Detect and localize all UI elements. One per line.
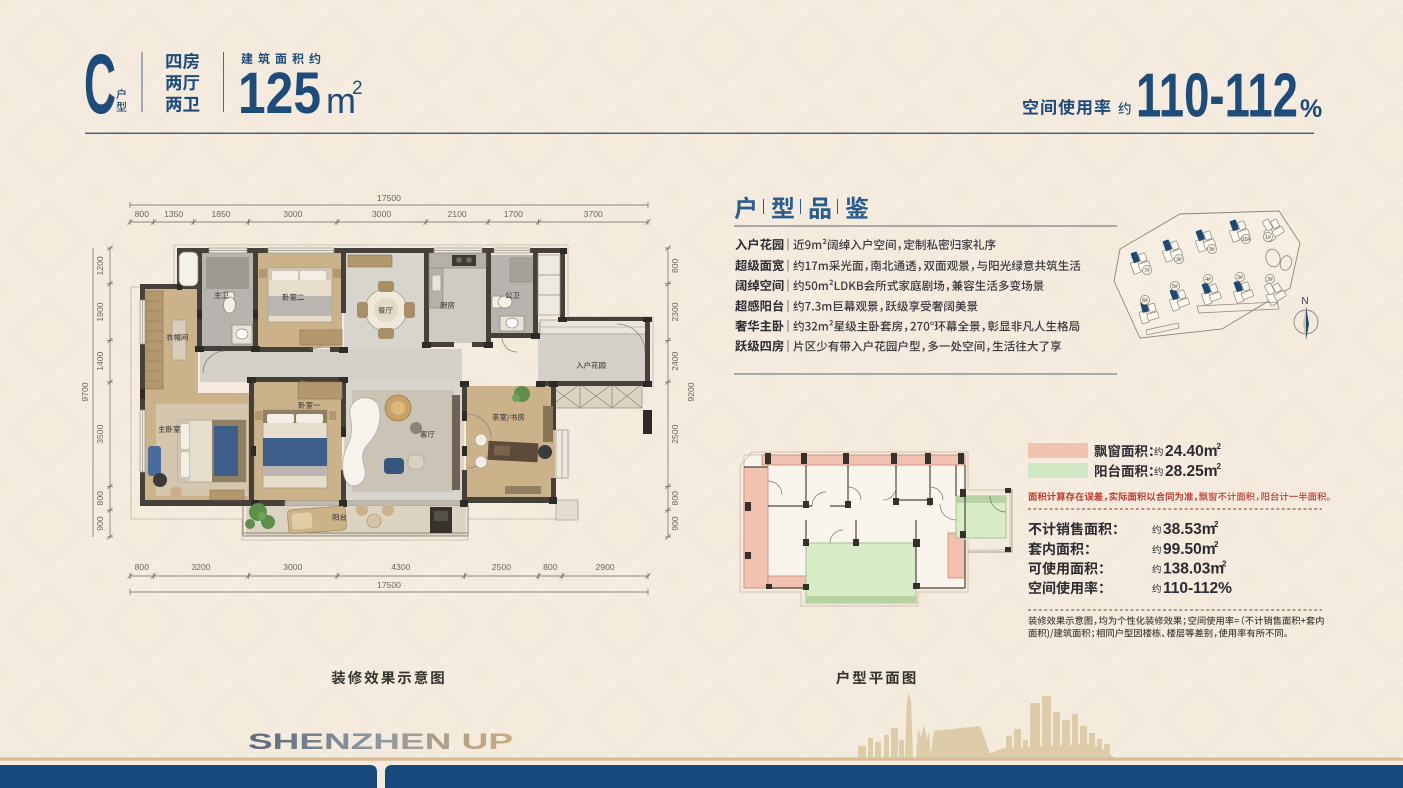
svg-text:3700: 3700 xyxy=(584,209,603,219)
svg-text:6#: 6# xyxy=(1142,298,1148,304)
svg-text:3000: 3000 xyxy=(372,209,391,219)
svg-text:2300: 2300 xyxy=(670,302,680,321)
svg-text:5#: 5# xyxy=(1172,284,1178,290)
svg-text:2500: 2500 xyxy=(670,424,680,443)
svg-text:2: 2 xyxy=(352,78,363,99)
svg-text:38.53m: 38.53m xyxy=(1163,521,1216,538)
svg-text:1#: 1# xyxy=(1265,235,1271,241)
svg-text:800: 800 xyxy=(670,258,680,273)
svg-text:800: 800 xyxy=(135,209,150,219)
svg-text:9200: 9200 xyxy=(686,382,696,401)
svg-text:1400: 1400 xyxy=(95,351,105,370)
svg-text:1900: 1900 xyxy=(95,302,105,321)
svg-text:2900: 2900 xyxy=(596,562,615,572)
svg-text:800: 800 xyxy=(135,562,150,572)
svg-text:99.50m: 99.50m xyxy=(1163,541,1216,558)
svg-text:24.40m: 24.40m xyxy=(1165,443,1218,460)
svg-text:2100: 2100 xyxy=(448,209,467,219)
svg-text:800: 800 xyxy=(543,562,558,572)
svg-text:3200: 3200 xyxy=(191,562,210,572)
svg-text:900: 900 xyxy=(95,516,105,531)
svg-text:2: 2 xyxy=(1214,540,1219,549)
svg-text:138.03m: 138.03m xyxy=(1163,561,1224,578)
svg-text:2#: 2# xyxy=(1267,277,1273,283)
svg-text:800: 800 xyxy=(670,491,680,506)
svg-text:17500: 17500 xyxy=(377,580,401,590)
svg-text:SHENZHEN UP: SHENZHEN UP xyxy=(248,729,513,754)
svg-text:900: 900 xyxy=(670,516,680,531)
svg-text:7#: 7# xyxy=(1144,268,1150,274)
svg-text:9#: 9# xyxy=(1209,247,1215,253)
svg-text:%: % xyxy=(1300,95,1322,123)
svg-text:2500: 2500 xyxy=(492,562,511,572)
svg-text:2: 2 xyxy=(1217,442,1222,451)
svg-text:4300: 4300 xyxy=(391,562,410,572)
svg-text:10#: 10# xyxy=(1242,237,1251,243)
svg-text:3#: 3# xyxy=(1176,257,1182,263)
svg-text:1700: 1700 xyxy=(504,209,523,219)
svg-text:9700: 9700 xyxy=(80,382,90,401)
svg-text:2: 2 xyxy=(1217,462,1222,471)
svg-text:800: 800 xyxy=(95,491,105,506)
svg-text:2: 2 xyxy=(1222,560,1227,569)
svg-text:110-112: 110-112 xyxy=(1136,62,1298,131)
svg-text:1850: 1850 xyxy=(211,209,230,219)
svg-text:1200: 1200 xyxy=(95,256,105,275)
svg-text:3000: 3000 xyxy=(283,562,302,572)
svg-text:110-112%: 110-112% xyxy=(1163,580,1232,597)
svg-text:2400: 2400 xyxy=(670,351,680,370)
svg-text:28.25m: 28.25m xyxy=(1165,463,1218,480)
svg-text:3#: 3# xyxy=(1237,275,1243,281)
svg-text:2: 2 xyxy=(1214,520,1219,529)
svg-text:3500: 3500 xyxy=(95,424,105,443)
svg-text:1350: 1350 xyxy=(164,209,183,219)
svg-text:N: N xyxy=(1301,296,1308,307)
svg-text:4#: 4# xyxy=(1205,277,1211,283)
svg-text:C: C xyxy=(84,37,116,131)
svg-text:3000: 3000 xyxy=(283,209,302,219)
svg-text:125: 125 xyxy=(238,61,321,126)
svg-text:17500: 17500 xyxy=(377,193,401,203)
